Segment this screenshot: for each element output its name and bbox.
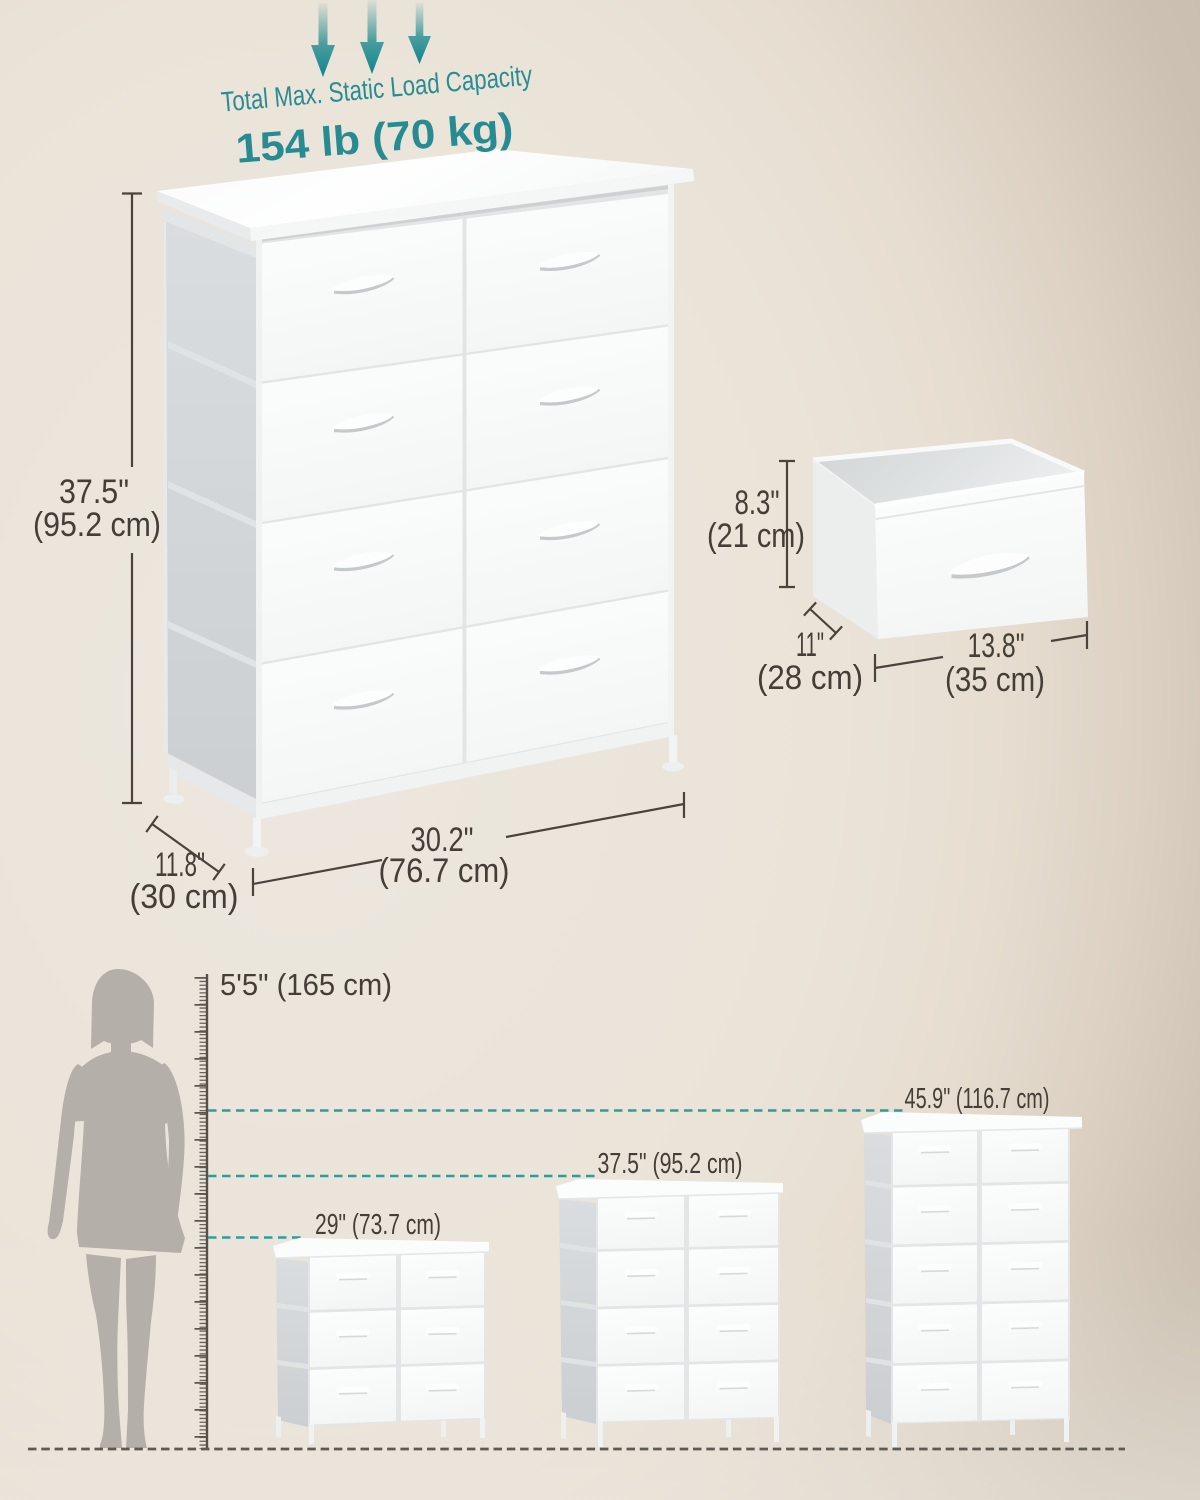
svg-text:29" (73.7 cm): 29" (73.7 cm) [315, 1209, 441, 1241]
svg-text:(95.2 cm): (95.2 cm) [33, 506, 161, 544]
svg-text:(28 cm): (28 cm) [757, 659, 863, 697]
svg-text:(35 cm): (35 cm) [945, 661, 1045, 699]
svg-text:(30 cm): (30 cm) [130, 878, 239, 916]
svg-text:(76.7 cm): (76.7 cm) [379, 852, 510, 890]
svg-text:37.5" (95.2 cm): 37.5" (95.2 cm) [598, 1148, 743, 1180]
svg-text:(21 cm): (21 cm) [707, 517, 805, 555]
svg-text:13.8": 13.8" [968, 627, 1025, 665]
svg-text:5'5" (165 cm): 5'5" (165 cm) [220, 967, 392, 1002]
svg-text:45.9" (116.7 cm): 45.9" (116.7 cm) [905, 1083, 1050, 1115]
